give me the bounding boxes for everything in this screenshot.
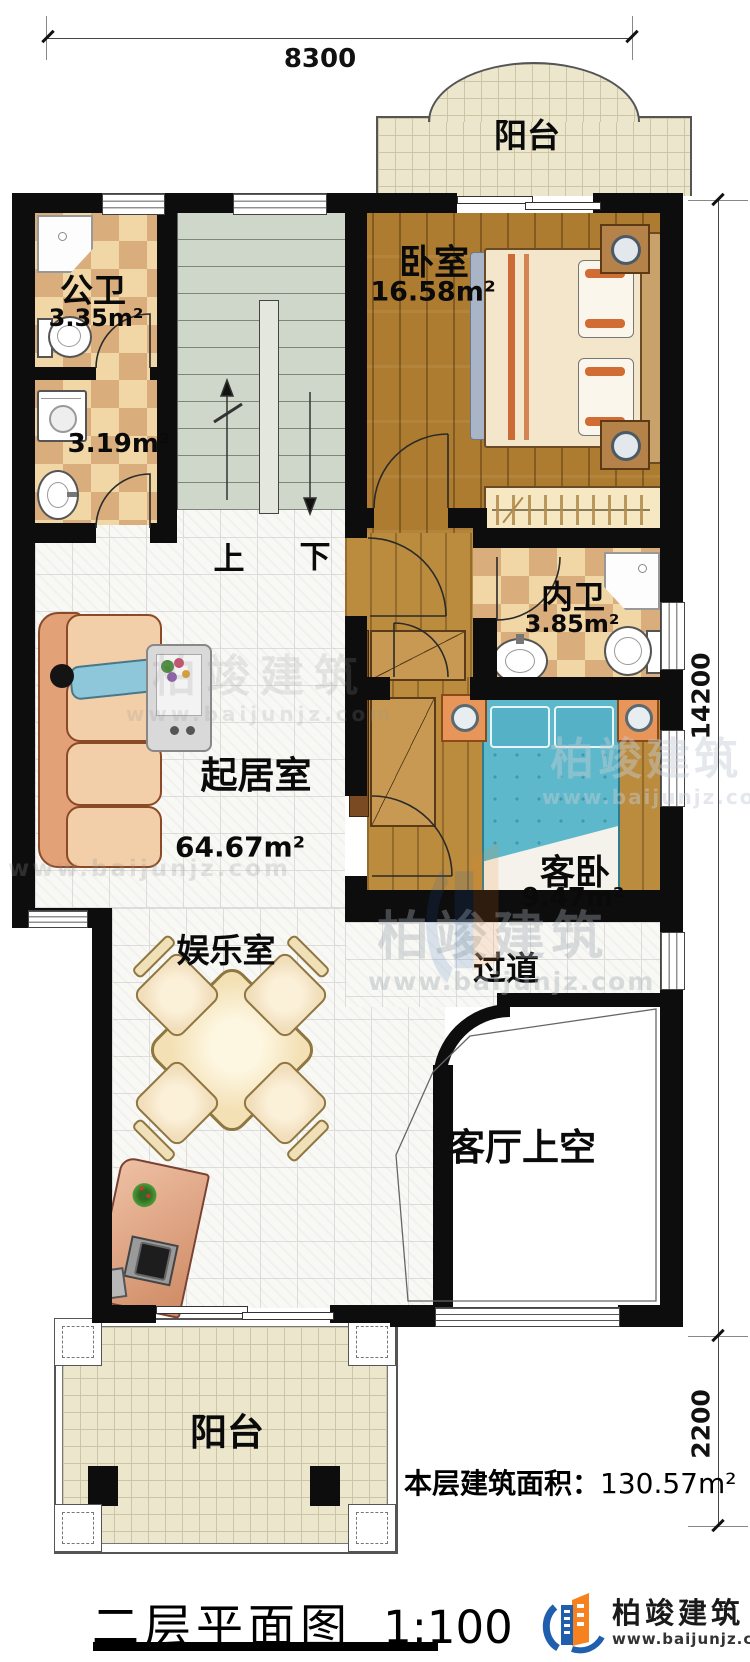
door-arc <box>374 434 448 508</box>
door-swing-arcs-layer <box>0 0 750 1662</box>
room-label-living: 起居室 <box>201 745 312 799</box>
room-area-laundry: 3.19m² <box>68 429 171 459</box>
floor-area-label: 本层建筑面积： <box>404 1467 600 1500</box>
room-area-living: 64.67m² <box>175 831 305 864</box>
company-logo-icon <box>542 1588 606 1654</box>
door-arc <box>368 538 446 616</box>
room-label-balcony-bottom: 阳台 <box>190 1402 264 1456</box>
room-area-bedroom: 16.58m² <box>370 277 495 308</box>
company-name: 柏竣建筑 <box>612 1590 744 1632</box>
door-arc <box>394 623 448 677</box>
room-area-public-bath: 3.35m² <box>49 304 144 332</box>
floor-area-value: 130.57m² <box>600 1467 736 1500</box>
room-area-ensuite: 3.85m² <box>525 610 620 638</box>
room-label-void: 客厅上空 <box>448 1117 596 1171</box>
dimension-width-top: 8300 <box>284 44 356 74</box>
stair-break-mark <box>214 404 242 422</box>
dimension-line <box>718 200 719 1527</box>
floor-plan-canvas: 阳台 卧室 16.58m² 公卫 3.35m² 3.19m² 内卫 3.85m²… <box>0 0 750 1662</box>
dimension-height-lower: 2200 <box>687 1389 716 1459</box>
room-label-balcony-top: 阳台 <box>494 109 560 157</box>
stairs-down-label: 下 <box>300 532 331 577</box>
watermark-logo-icon <box>425 830 525 990</box>
stairs-up-label: 上 <box>214 534 245 579</box>
floor-area-note: 本层建筑面积：130.57m² <box>404 1462 737 1502</box>
room-label-entertainment: 娱乐室 <box>177 924 276 972</box>
dimension-line <box>48 38 633 39</box>
dimension-height-main: 14200 <box>687 653 716 740</box>
company-website: www.baijunjz.com <box>612 1630 750 1648</box>
room-area-guest: 9.47m² <box>522 883 625 913</box>
door-arc <box>96 474 150 528</box>
title-underline <box>93 1642 438 1651</box>
